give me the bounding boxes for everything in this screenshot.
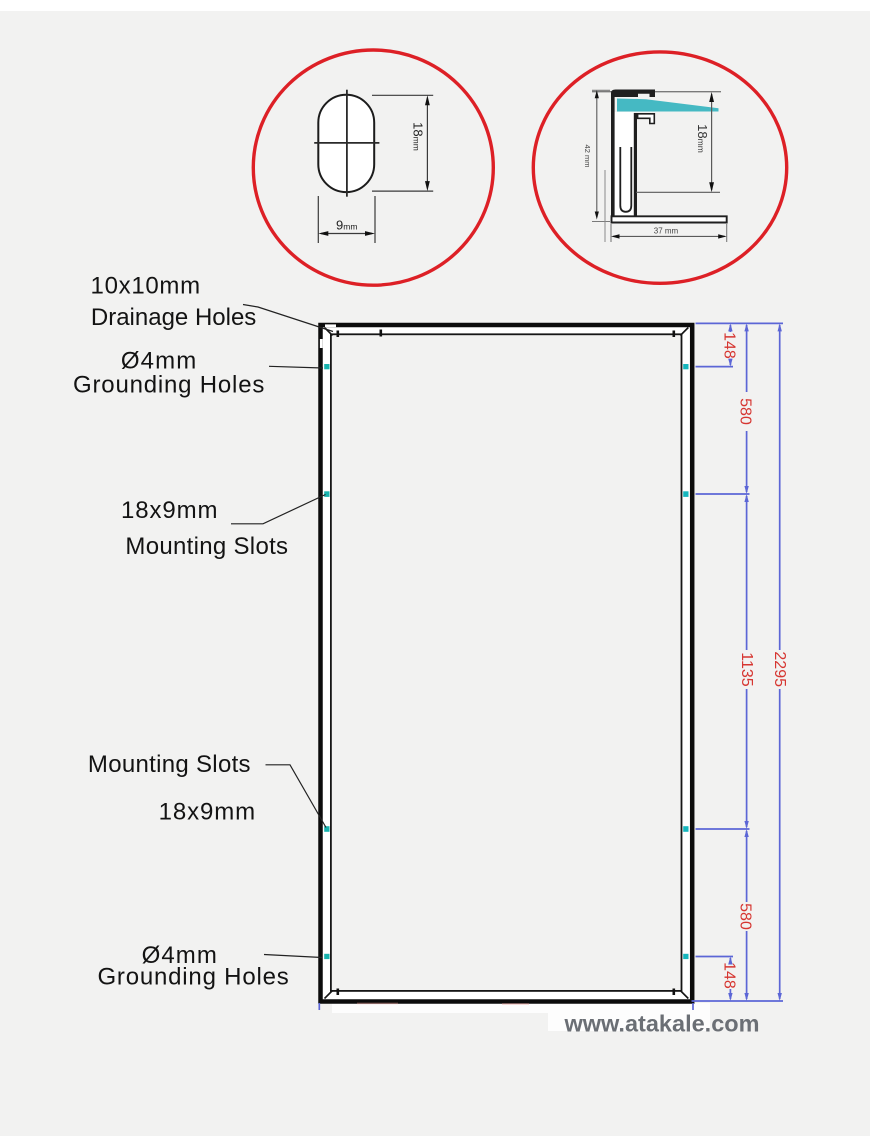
svg-text:2295: 2295 bbox=[771, 651, 788, 687]
svg-text:580: 580 bbox=[737, 903, 754, 930]
svg-text:Mounting Slots: Mounting Slots bbox=[125, 533, 288, 560]
svg-text:42 mm: 42 mm bbox=[583, 145, 592, 168]
svg-text:18x9mm: 18x9mm bbox=[121, 497, 218, 524]
svg-text:580: 580 bbox=[737, 398, 754, 425]
svg-text:Grounding Holes: Grounding Holes bbox=[73, 371, 265, 398]
svg-text:148: 148 bbox=[720, 962, 737, 989]
svg-text:37 mm: 37 mm bbox=[654, 227, 679, 236]
svg-text:Mounting Slots: Mounting Slots bbox=[88, 751, 251, 778]
svg-text:148: 148 bbox=[720, 332, 737, 359]
svg-text:www.atakale.com: www.atakale.com bbox=[563, 1010, 759, 1036]
svg-text:Grounding Holes: Grounding Holes bbox=[97, 964, 289, 991]
svg-text:18x9mm: 18x9mm bbox=[159, 799, 256, 826]
svg-text:1135: 1135 bbox=[738, 652, 755, 687]
svg-text:Drainage Holes: Drainage Holes bbox=[91, 304, 256, 331]
svg-text:10x10mm: 10x10mm bbox=[91, 273, 201, 300]
